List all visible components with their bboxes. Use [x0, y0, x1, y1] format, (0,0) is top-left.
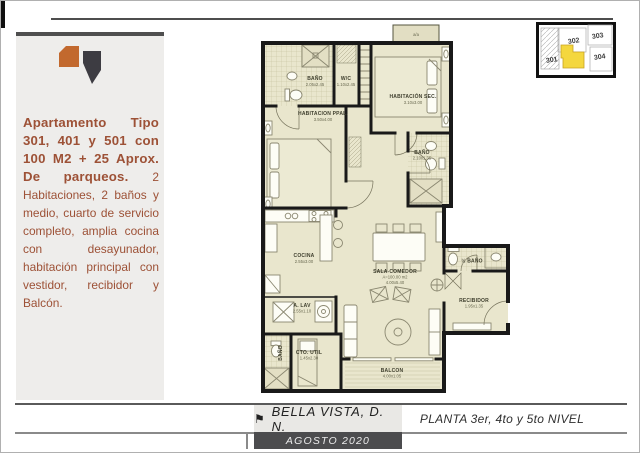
room-dims-sala: 4.00x5.40 [386, 280, 405, 285]
room-dims-bath1: 2.05x2.45 [306, 82, 325, 87]
room-dims-cocina: 2.55x3.00 [295, 259, 314, 264]
room-dims-wc: 1.10x2.45 [337, 82, 356, 87]
plan-title: PLANTA 3er, 4to y 5to NIVEL [413, 407, 591, 431]
room-dims-alav: 2.55x1.10 [293, 309, 312, 314]
date-box: AGOSTO 2020 [254, 432, 402, 449]
room-dims-recibidor: 1.95x1.35 [465, 304, 484, 309]
room-label-aa: a/a [413, 32, 419, 37]
room-dims-habsec: 3.10x3.00 [404, 100, 423, 105]
linen-closet [349, 137, 361, 167]
plan-date: AGOSTO 2020 [286, 435, 370, 447]
room-dims-habppal: 3.50x4.00 [314, 117, 333, 122]
sidebar: Apartamento Tipo 301, 401 y 501 con 100 … [16, 32, 164, 400]
room-area-sala: A=100.00 m2 [382, 275, 408, 280]
corner-bar [1, 1, 5, 28]
apartment-description: Apartamento Tipo 301, 401 y 501 con 100 … [23, 114, 159, 312]
closet-hatch [337, 45, 356, 63]
room-label-bath3: BAÑO [277, 345, 284, 361]
bed-secondary [375, 47, 450, 127]
key-plan: 301 302 303 304 [536, 22, 616, 78]
apartment-description-heading: Apartamento Tipo 301, 401 y 501 con 100 … [23, 115, 159, 184]
project-name-box: ⚑ BELLA VISTA, D. N. [254, 405, 402, 432]
plan-sheet: Apartamento Tipo 301, 401 y 501 con 100 … [0, 0, 640, 453]
floor-plan: a/a [255, 19, 517, 401]
footer-tick [246, 432, 248, 449]
room-dims-balcon: 4.00x1.05 [383, 374, 402, 379]
flag-icon: ⚑ [254, 413, 266, 425]
room-label-habsec: HABITACIÓN SEC. [389, 92, 436, 100]
room-label-halfbath: ½ BAÑO [461, 258, 482, 265]
logo-dark-shape [83, 51, 101, 84]
ac-ledge: a/a [393, 25, 439, 42]
room-label-bath1: BAÑO [307, 75, 323, 82]
apartment-description-body: 2 Habitaciones, 2 baños y medio, cuarto … [23, 170, 159, 310]
room-dims-bath2: 2.10x1.35 [413, 156, 432, 161]
logo [59, 46, 109, 92]
room-dims-ctoutil: 1.45x2.30 [300, 356, 319, 361]
logo-orange-shape [59, 46, 79, 67]
project-name: BELLA VISTA, D. N. [272, 404, 402, 434]
